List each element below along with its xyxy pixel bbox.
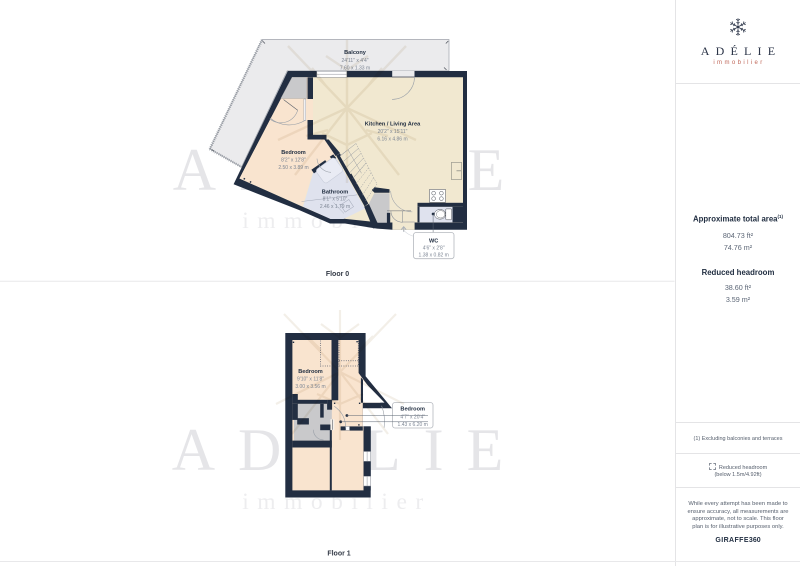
svg-text:Kitchen / Living Area: Kitchen / Living Area [365,122,421,128]
svg-text:2.50 x 3.89 m: 2.50 x 3.89 m [278,165,308,171]
svg-text:Bedroom: Bedroom [400,406,425,412]
svg-text:Bedroom: Bedroom [281,150,306,156]
svg-text:4'6" x 2'8": 4'6" x 2'8" [423,246,445,252]
svg-text:Floor 1: Floor 1 [327,551,350,558]
svg-text:1.43 x 6.20 m: 1.43 x 6.20 m [398,422,428,428]
svg-text:Bedroom: Bedroom [298,369,323,375]
svg-text:WC: WC [429,239,438,245]
svg-text:8'1" x 5'10": 8'1" x 5'10" [323,197,348,203]
svg-text:Floor 0: Floor 0 [326,271,349,278]
svg-text:2.46 x 1.79 m: 2.46 x 1.79 m [320,204,350,210]
svg-text:8'2" x 12'8": 8'2" x 12'8" [281,158,306,164]
svg-text:6.16 x 4.86 m: 6.16 x 4.86 m [377,136,407,142]
svg-text:Bathroom: Bathroom [322,190,348,196]
svg-text:1.38 x 0.82 m: 1.38 x 0.82 m [419,253,449,259]
